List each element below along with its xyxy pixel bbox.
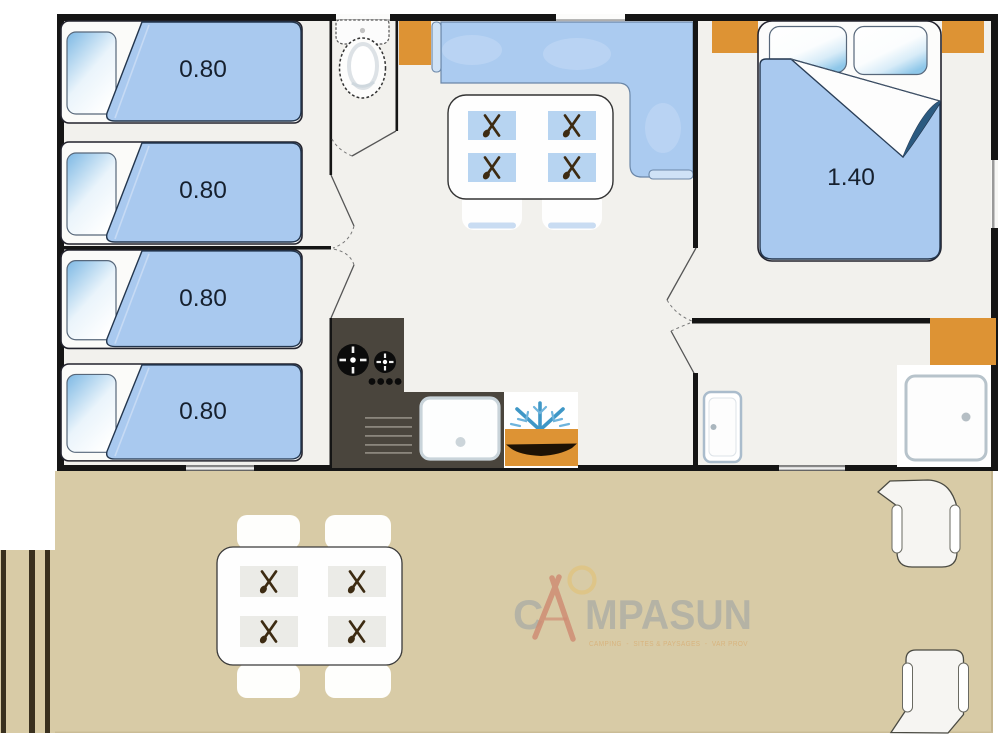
svg-text:1.40: 1.40 <box>827 164 875 191</box>
svg-text:0.80: 0.80 <box>179 56 227 83</box>
svg-text:0.80: 0.80 <box>179 398 227 425</box>
svg-text:0.80: 0.80 <box>179 285 227 312</box>
svg-text:0.80: 0.80 <box>179 177 227 204</box>
svg-text:CAMPING - SITES & PAYSAGES: CAMPING - SITES & PAYSAGES - VAR PROV <box>589 639 748 648</box>
svg-text:MPASUN: MPASUN <box>585 591 752 638</box>
